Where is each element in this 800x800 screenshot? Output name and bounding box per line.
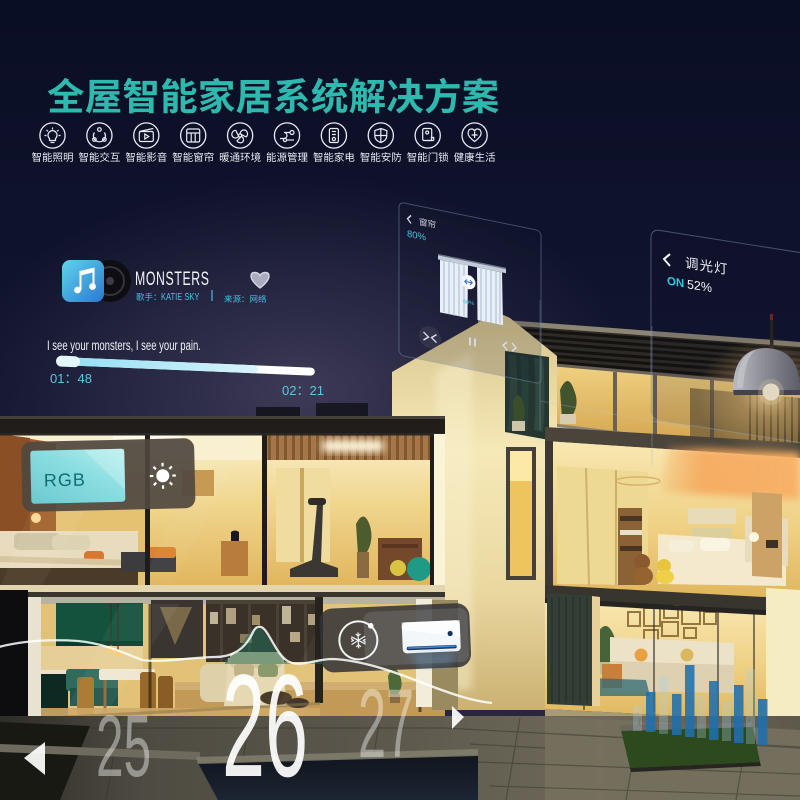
- svg-text:26: 26: [222, 644, 308, 800]
- svg-text:KATIE SKY: KATIE SKY: [161, 291, 199, 302]
- svg-text:01：48: 01：48: [50, 371, 92, 386]
- svg-text:RGB: RGB: [44, 470, 86, 491]
- svg-text:02：21: 02：21: [282, 383, 324, 398]
- svg-text:25: 25: [96, 699, 151, 796]
- svg-text:27: 27: [358, 670, 414, 778]
- svg-text:MONSTERS: MONSTERS: [135, 268, 210, 290]
- svg-text:I see your monsters, I see you: I see your monsters, I see your pain.: [47, 337, 201, 353]
